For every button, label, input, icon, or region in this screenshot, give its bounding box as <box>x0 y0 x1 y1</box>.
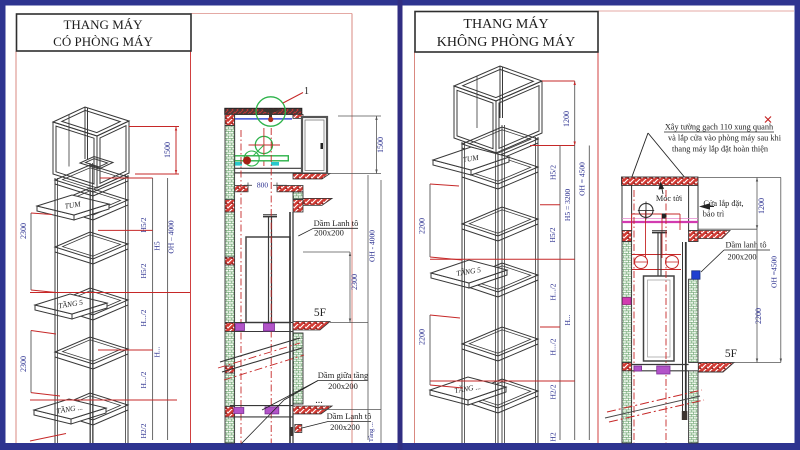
svg-text:thang máy lắp đặt hoàn thiện: thang máy lắp đặt hoàn thiện <box>672 145 769 154</box>
svg-text:5F: 5F <box>725 348 737 360</box>
svg-text:và lắp cửa vào phòng máy sau k: và lắp cửa vào phòng máy sau khi <box>668 134 782 143</box>
svg-text:1: 1 <box>304 86 309 97</box>
svg-text:2300: 2300 <box>350 274 359 290</box>
svg-text:800: 800 <box>257 181 269 190</box>
svg-text:H2/2: H2/2 <box>549 384 558 399</box>
svg-text:2300: 2300 <box>19 223 28 239</box>
svg-text:Dầm Lanh tô: Dầm Lanh tô <box>327 411 372 421</box>
svg-text:H.../2: H.../2 <box>549 283 558 300</box>
svg-text:H5/2: H5/2 <box>139 263 148 278</box>
svg-text:5F: 5F <box>314 307 326 319</box>
svg-text:H2/2: H2/2 <box>139 423 148 438</box>
svg-text:OH = 4500: OH = 4500 <box>578 162 587 196</box>
svg-text:KHÔNG PHÒNG MÁY: KHÔNG PHÒNG MÁY <box>437 33 575 50</box>
svg-text:H2: H2 <box>549 432 558 441</box>
svg-text:H.../2: H.../2 <box>549 338 558 355</box>
svg-text:200x200: 200x200 <box>330 422 360 432</box>
svg-text:1200: 1200 <box>757 198 766 214</box>
svg-text:1500: 1500 <box>163 142 172 158</box>
svg-text:...: ... <box>315 395 323 406</box>
svg-text:H.../2: H.../2 <box>139 371 148 388</box>
svg-text:H5/2: H5/2 <box>139 217 148 232</box>
svg-text:THANG MÁY: THANG MÁY <box>63 17 143 32</box>
svg-text:Dầm lanh tô: Dầm lanh tô <box>725 241 766 250</box>
svg-text:H5 = 3200: H5 = 3200 <box>563 189 572 221</box>
svg-text:OH - 4000: OH - 4000 <box>368 230 377 262</box>
svg-text:THANG MÁY: THANG MÁY <box>463 15 548 32</box>
svg-text:1200: 1200 <box>562 111 571 127</box>
svg-text:Dầm Lanh tô: Dầm Lanh tô <box>314 218 359 228</box>
svg-text:H.../2: H.../2 <box>139 309 148 326</box>
svg-text:Tầng ...: Tầng ... <box>368 422 375 442</box>
svg-text:Móc tời: Móc tời <box>656 194 683 203</box>
svg-text:2300: 2300 <box>19 356 28 372</box>
svg-text:Xây tường gạch 110 xung quanh: Xây tường gạch 110 xung quanh <box>665 123 774 132</box>
svg-text:200x200: 200x200 <box>727 253 756 262</box>
svg-text:2200: 2200 <box>418 329 427 345</box>
svg-text:2200: 2200 <box>754 308 763 324</box>
svg-text:2200: 2200 <box>418 218 427 234</box>
svg-text:OH =4500: OH =4500 <box>770 256 779 288</box>
svg-text:H5/2: H5/2 <box>548 227 557 242</box>
svg-text:200x200: 200x200 <box>328 381 358 391</box>
svg-text:OH – 4000: OH – 4000 <box>167 220 176 254</box>
svg-text:200x200: 200x200 <box>314 228 344 238</box>
svg-text:H5/2: H5/2 <box>549 165 558 180</box>
svg-text:Dầm giữa tầng: Dầm giữa tầng <box>318 370 369 380</box>
svg-text:H5: H5 <box>153 241 162 250</box>
svg-text:bảo trì: bảo trì <box>703 210 725 219</box>
svg-text:H...: H... <box>153 346 162 357</box>
svg-text:H...: H... <box>563 314 572 325</box>
svg-text:CÓ PHÒNG MÁY: CÓ PHÒNG MÁY <box>53 34 153 49</box>
svg-text:1500: 1500 <box>376 137 385 153</box>
